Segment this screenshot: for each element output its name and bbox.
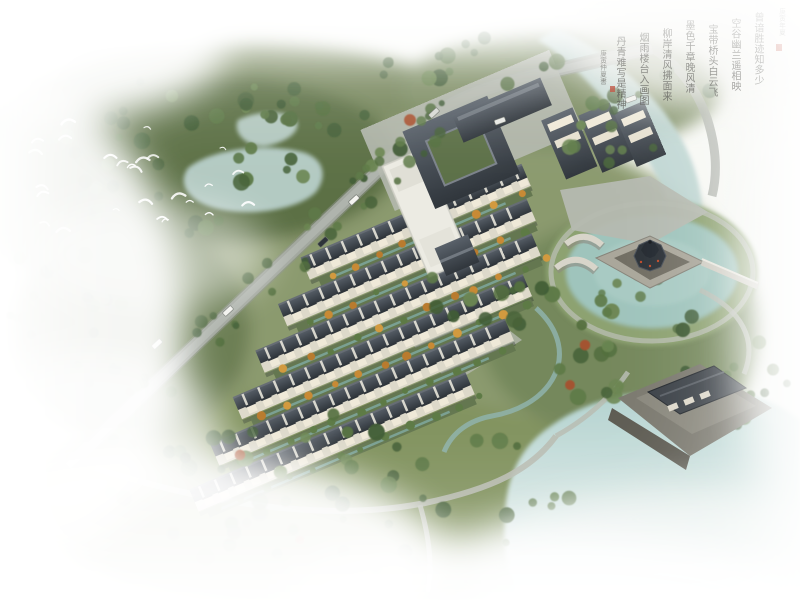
roadside-tree — [439, 100, 445, 106]
tree — [296, 170, 310, 184]
tree — [513, 442, 521, 450]
tree — [585, 96, 600, 111]
tree — [290, 96, 300, 106]
tree — [328, 409, 340, 421]
tree — [512, 317, 526, 331]
red-maple-tree — [404, 114, 416, 126]
tree — [392, 442, 402, 452]
tree — [344, 460, 358, 474]
roadside-tree — [215, 337, 224, 346]
red-maple-tree — [580, 340, 590, 350]
tree — [676, 323, 690, 337]
tree — [500, 77, 514, 91]
tree — [308, 207, 321, 220]
tree — [233, 153, 244, 164]
tree — [368, 424, 385, 441]
tree — [615, 381, 624, 390]
tree — [233, 174, 250, 191]
tree — [618, 145, 627, 154]
tree — [426, 272, 438, 284]
tree — [612, 279, 621, 288]
tree — [567, 140, 581, 154]
tree — [251, 83, 258, 90]
tree — [471, 49, 478, 56]
tree — [245, 142, 257, 154]
tree — [435, 502, 451, 518]
tree — [240, 98, 253, 111]
tree — [492, 433, 509, 450]
tree — [598, 289, 605, 296]
tree — [415, 457, 429, 471]
roadside-tree — [304, 224, 311, 231]
tree — [380, 71, 388, 79]
tree — [316, 101, 331, 116]
rendering-canvas — [0, 0, 800, 600]
roadside-tree — [394, 177, 401, 184]
tree — [152, 158, 164, 170]
tree — [539, 62, 549, 72]
tree — [550, 492, 559, 501]
tree — [554, 363, 566, 375]
roadside-tree — [375, 156, 385, 166]
roadside-tree — [416, 116, 426, 126]
tree — [609, 106, 618, 115]
roadside-tree — [421, 150, 428, 157]
tree — [300, 432, 310, 442]
tree — [549, 54, 565, 70]
tree — [359, 110, 369, 120]
tree — [277, 100, 286, 109]
roadside-tree — [192, 328, 202, 338]
roadside-tree — [403, 155, 416, 168]
roadside-tree — [429, 135, 441, 147]
roadside-tree — [365, 196, 378, 209]
roadside-tree — [362, 164, 370, 172]
tree — [576, 120, 586, 130]
tree — [419, 495, 426, 502]
tree — [287, 82, 301, 96]
tree — [685, 309, 699, 323]
tree — [285, 153, 298, 166]
roadside-tree — [356, 172, 364, 180]
pavilion-finial — [648, 240, 651, 243]
red-maple-tree — [565, 380, 575, 390]
tree — [315, 122, 322, 129]
tree — [528, 498, 537, 507]
tree — [422, 71, 437, 86]
roadside-tree — [349, 177, 356, 184]
tree — [221, 430, 236, 445]
architectural-rendering: 庚寅年夏 曾谙胜迹知多少空谷幽兰遥相映宝带桥头白云飞墨色千章晚风清柳岸清风拂面来… — [0, 0, 800, 600]
tree — [283, 166, 291, 174]
tree — [184, 115, 199, 130]
tree — [729, 362, 738, 371]
tree — [470, 434, 484, 448]
tree — [260, 110, 269, 119]
tree — [447, 310, 459, 322]
roadside-tree — [268, 288, 276, 296]
roadside-tree — [209, 312, 217, 320]
tree — [117, 116, 130, 129]
roadside-tree — [395, 137, 405, 147]
tree — [602, 307, 612, 317]
tree — [601, 387, 613, 399]
tree — [327, 123, 341, 137]
tree — [649, 144, 657, 152]
tree — [435, 52, 444, 61]
tree — [381, 476, 397, 492]
roadside-tree — [195, 315, 208, 328]
roadside-tree — [233, 322, 240, 329]
tree — [375, 147, 385, 157]
tree — [602, 340, 614, 352]
tree — [134, 132, 151, 149]
tree — [570, 389, 587, 406]
tree — [535, 281, 549, 295]
tree — [463, 292, 478, 307]
tree — [247, 426, 258, 437]
tree — [280, 114, 291, 125]
tree — [504, 510, 511, 517]
tree — [605, 145, 614, 154]
tree — [605, 120, 617, 132]
tree — [514, 281, 525, 292]
tree — [209, 108, 225, 124]
tree — [342, 426, 354, 438]
tree — [445, 68, 453, 76]
tree — [429, 300, 443, 314]
tree — [494, 285, 510, 301]
tree — [603, 157, 614, 168]
tree — [635, 291, 646, 302]
roadside-tree — [300, 261, 311, 272]
tree — [479, 312, 493, 326]
tree — [576, 320, 587, 331]
tree — [383, 57, 394, 68]
